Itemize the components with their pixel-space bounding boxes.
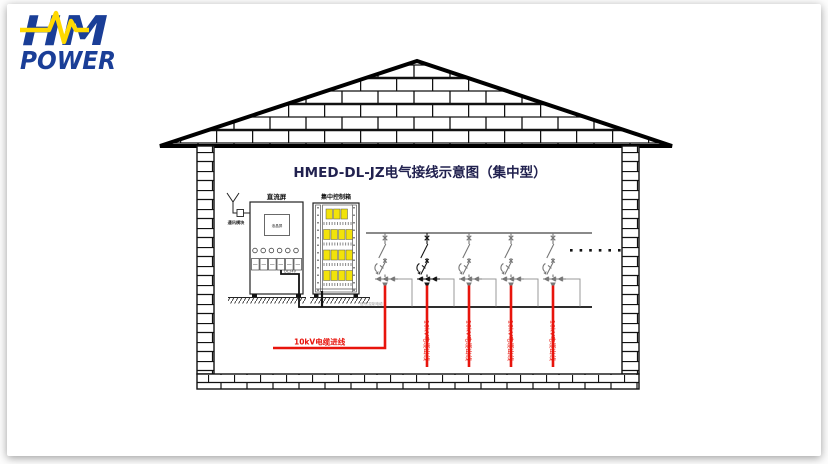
dc-cable-label: DC24V bbox=[284, 270, 297, 274]
dc-panel-label: 直流屏 bbox=[267, 192, 287, 201]
svg-text:10kV电缆出线: 10kV电缆出线 bbox=[423, 320, 432, 362]
screenshot-card: HM POWER HMED-DL-JZ电气接线示意图（集中型） 通讯模块 直流屏… bbox=[0, 0, 828, 464]
hm-power-logo: HM POWER bbox=[20, 7, 116, 75]
house-outline bbox=[160, 61, 672, 389]
antenna-group bbox=[227, 193, 250, 217]
branch-5 bbox=[543, 233, 580, 307]
control-cable-note: 信号,控制电缆 bbox=[360, 301, 383, 306]
outgoing-cable-labels: 10kV电缆出线 10kV电缆出线 10kV电缆出线 10kV电缆出线 bbox=[423, 320, 558, 362]
logo-power-text: POWER bbox=[20, 46, 116, 75]
branch-1 bbox=[375, 233, 412, 307]
branch-4 bbox=[501, 233, 538, 307]
house-right-wall bbox=[622, 146, 639, 374]
comm-module-label: 通讯模块 bbox=[228, 219, 246, 226]
branch-2 bbox=[417, 233, 454, 307]
house-roof bbox=[160, 61, 672, 146]
continuation-dots bbox=[570, 249, 621, 252]
svg-text:10kV电缆出线: 10kV电缆出线 bbox=[507, 320, 516, 362]
comm-module-box bbox=[237, 210, 244, 217]
svg-text:10kV电缆出线: 10kV电缆出线 bbox=[465, 320, 474, 362]
control-box-label: 集中控制箱 bbox=[320, 193, 351, 201]
dc-panel-screen-label: 液晶屏 bbox=[272, 223, 283, 228]
control-box-cabinet: 集中控制箱 bbox=[313, 193, 359, 298]
branch-3 bbox=[459, 233, 496, 307]
incoming-cable-label: 10kV电缆进线 bbox=[294, 337, 346, 347]
page-title: HMED-DL-JZ电气接线示意图（集中型） bbox=[293, 164, 546, 181]
house-bottom-wall bbox=[197, 374, 639, 389]
house-left-wall bbox=[197, 146, 214, 374]
wiring-diagram: HM POWER HMED-DL-JZ电气接线示意图（集中型） 通讯模块 直流屏… bbox=[0, 0, 828, 464]
dc-panel-cabinet: 直流屏 液晶屏 bbox=[250, 192, 303, 298]
svg-text:10kV电缆出线: 10kV电缆出线 bbox=[549, 320, 558, 362]
